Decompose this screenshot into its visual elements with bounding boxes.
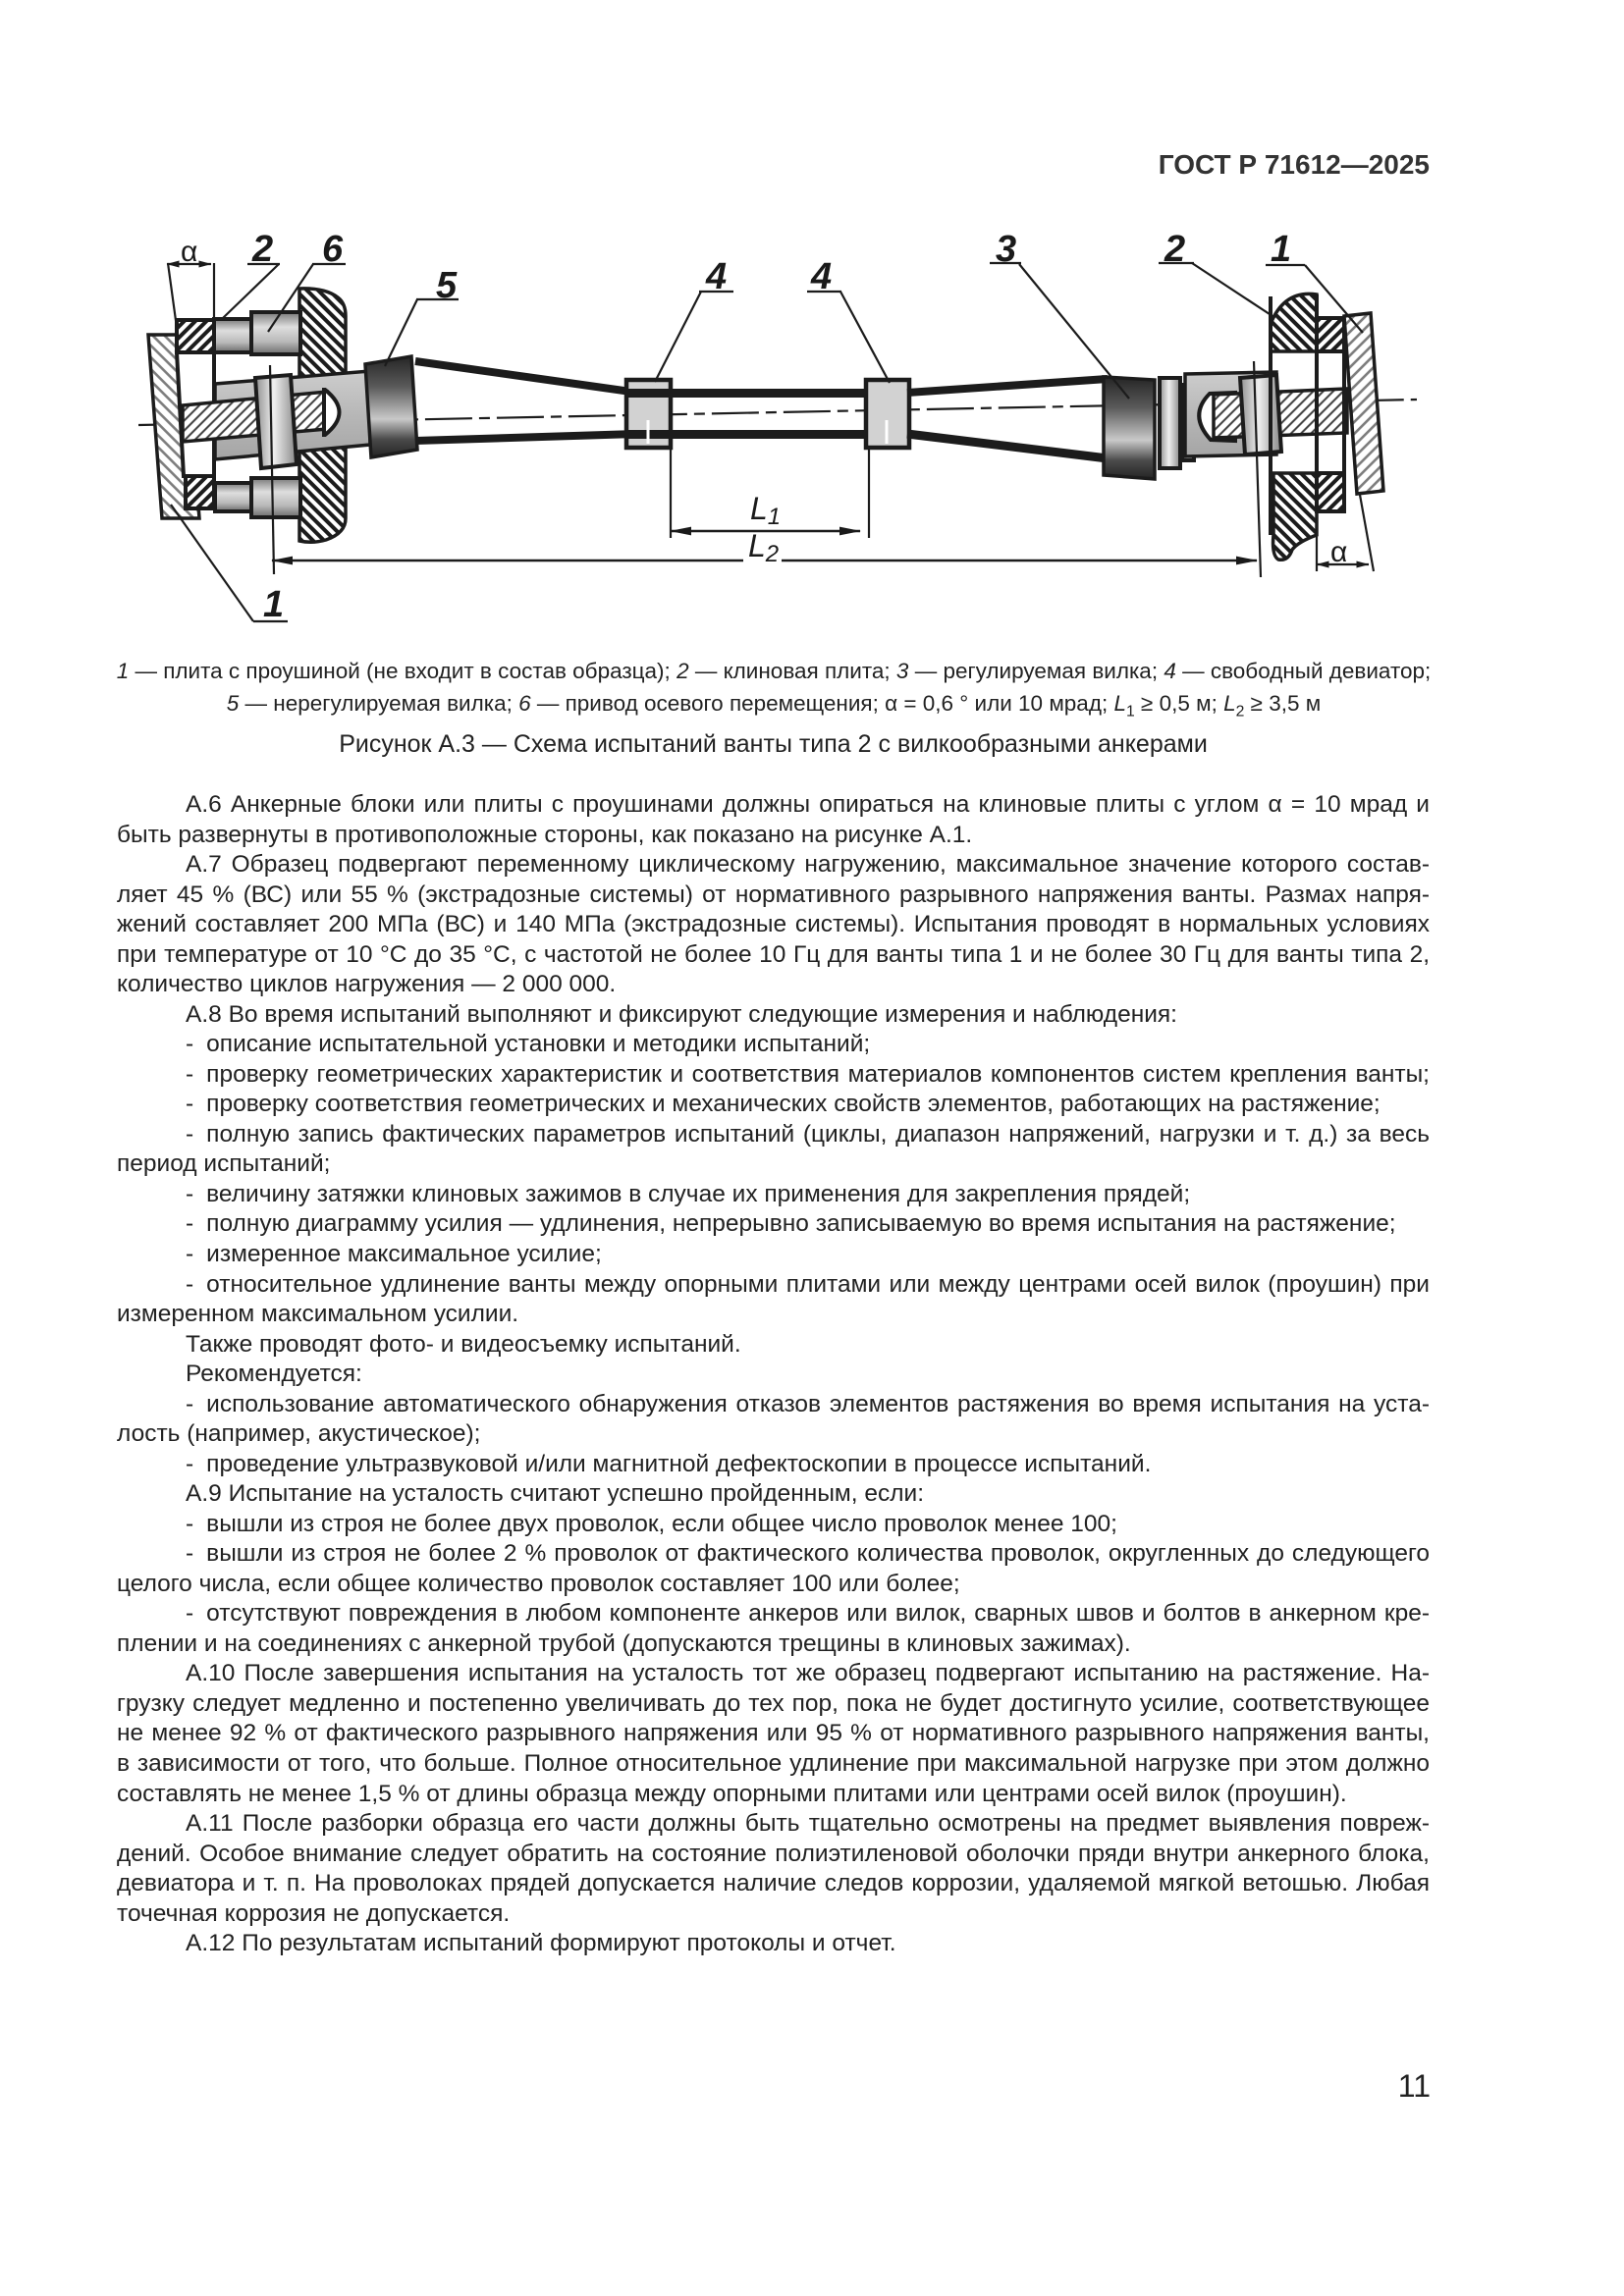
svg-text:4: 4	[705, 256, 727, 297]
svg-text:6: 6	[322, 229, 344, 270]
svg-text:L1: L1	[750, 491, 781, 530]
svg-text:4: 4	[810, 256, 832, 297]
svg-text:3: 3	[996, 229, 1016, 270]
svg-text:1: 1	[263, 584, 284, 625]
svg-text:α: α	[181, 236, 197, 268]
svg-text:α: α	[1330, 536, 1347, 568]
svg-text:1: 1	[1271, 229, 1291, 270]
svg-text:2: 2	[1164, 229, 1185, 270]
svg-text:L2: L2	[748, 528, 779, 567]
svg-text:2: 2	[251, 229, 273, 270]
svg-text:5: 5	[436, 265, 458, 306]
